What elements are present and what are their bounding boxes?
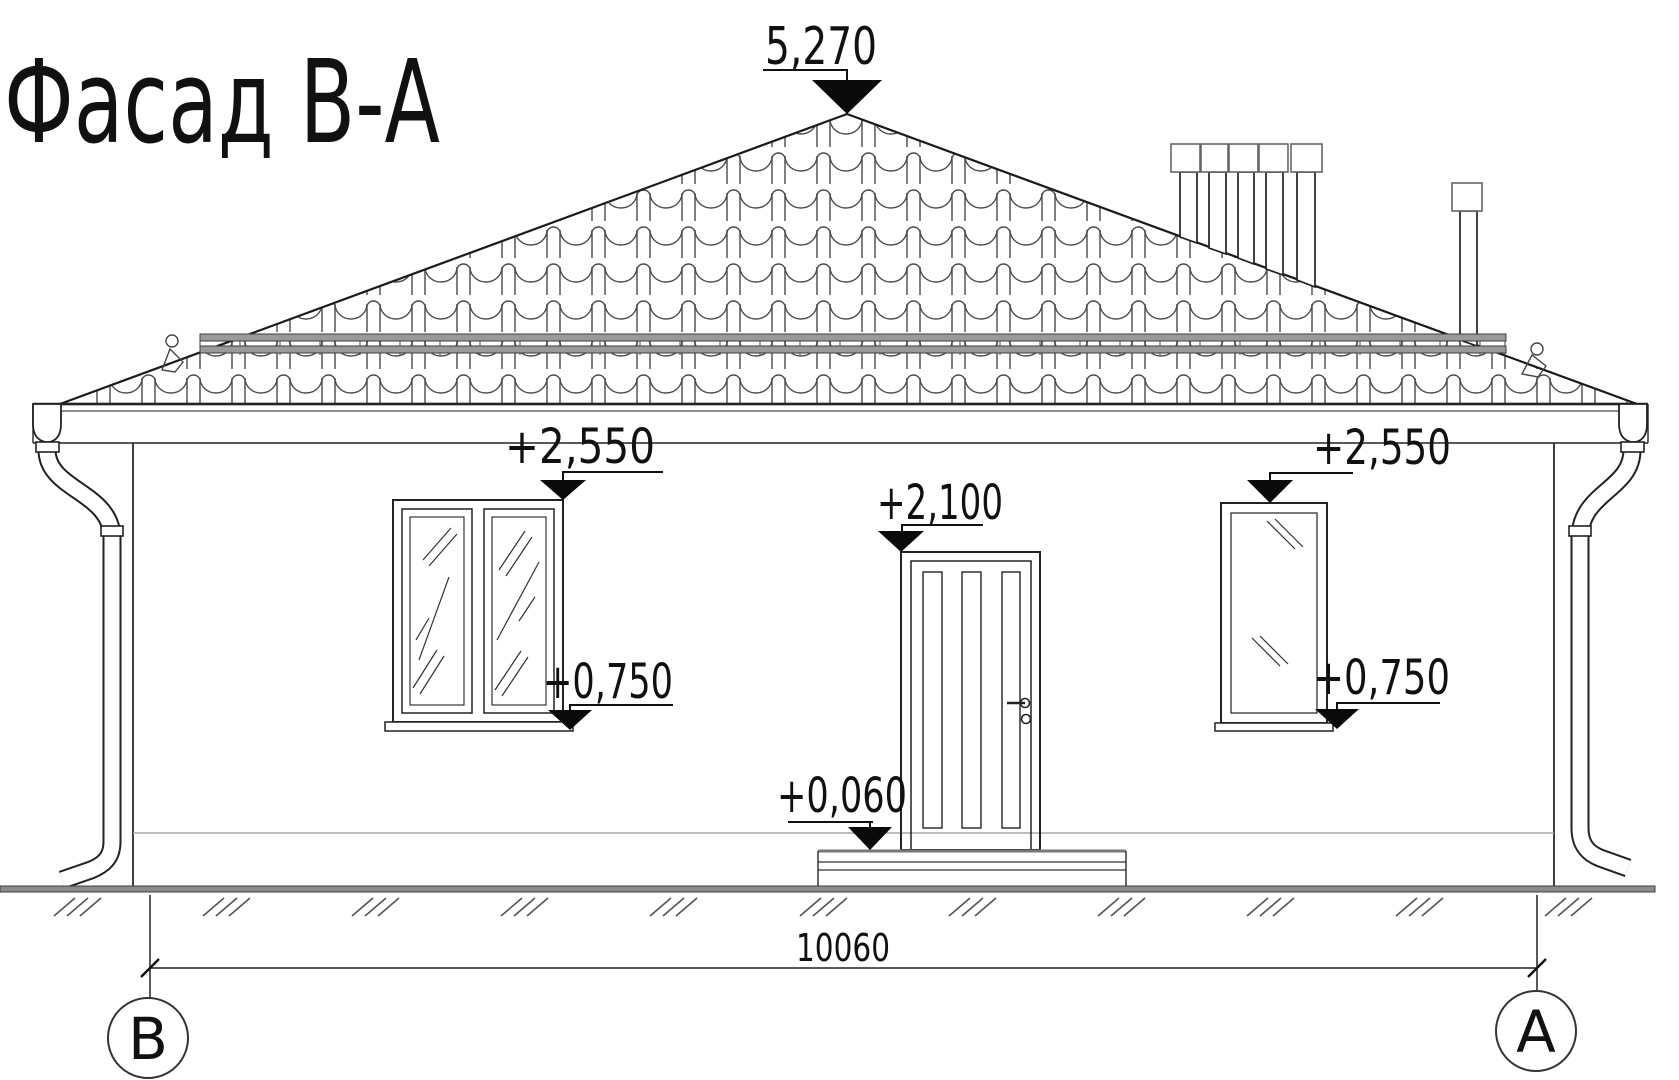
flue-cap bbox=[1229, 144, 1258, 172]
flue-cap bbox=[1259, 144, 1288, 172]
right-window-sill-level-text: +0,750 bbox=[1313, 650, 1450, 706]
snow-rail-lower-bar bbox=[200, 346, 1506, 353]
flue-pipe bbox=[1180, 172, 1197, 243]
vent-pipe-cap bbox=[1452, 183, 1482, 211]
dimension-value: 10060 bbox=[796, 926, 890, 970]
gutter-funnel-left bbox=[33, 404, 61, 442]
downspout-collar-right bbox=[1621, 442, 1644, 452]
downspout-joint-right bbox=[1569, 526, 1591, 536]
flue-pipe bbox=[1238, 172, 1254, 264]
flue-pipe bbox=[1266, 172, 1283, 275]
window-right-sill bbox=[1215, 723, 1333, 731]
flue-cap bbox=[1291, 144, 1322, 172]
window-left-sill bbox=[385, 722, 573, 731]
vent-pipe-body bbox=[1460, 211, 1477, 346]
porch-level-text: +0,060 bbox=[777, 768, 907, 824]
ridge-level-text: 5,270 bbox=[765, 17, 877, 77]
left-window-sill-level-text: +0,750 bbox=[543, 654, 673, 710]
downspout-joint-left bbox=[101, 526, 123, 536]
right-window-head-level-text: +2,550 bbox=[1313, 420, 1451, 476]
downspout-collar-left bbox=[36, 442, 59, 452]
snow-rail-upper-bar bbox=[200, 334, 1506, 341]
ground-line bbox=[0, 886, 1655, 892]
flue-pipe bbox=[1297, 172, 1315, 287]
left-window-head-level-text: +2,550 bbox=[505, 419, 655, 475]
flue-cap bbox=[1201, 144, 1228, 172]
door-head-level-text: +2,100 bbox=[877, 475, 1003, 531]
flue-pipe bbox=[1209, 172, 1226, 254]
facade-drawing: Фасад В-А bbox=[0, 0, 1679, 1080]
flue-cap bbox=[1171, 144, 1200, 172]
page-title: Фасад В-А bbox=[4, 36, 440, 170]
gutter-funnel-right bbox=[1619, 404, 1647, 442]
axis-label-right: А bbox=[1516, 998, 1556, 1066]
axis-label-left: В bbox=[128, 1005, 168, 1073]
drawing-sheet: Фасад В-А bbox=[0, 0, 1679, 1080]
